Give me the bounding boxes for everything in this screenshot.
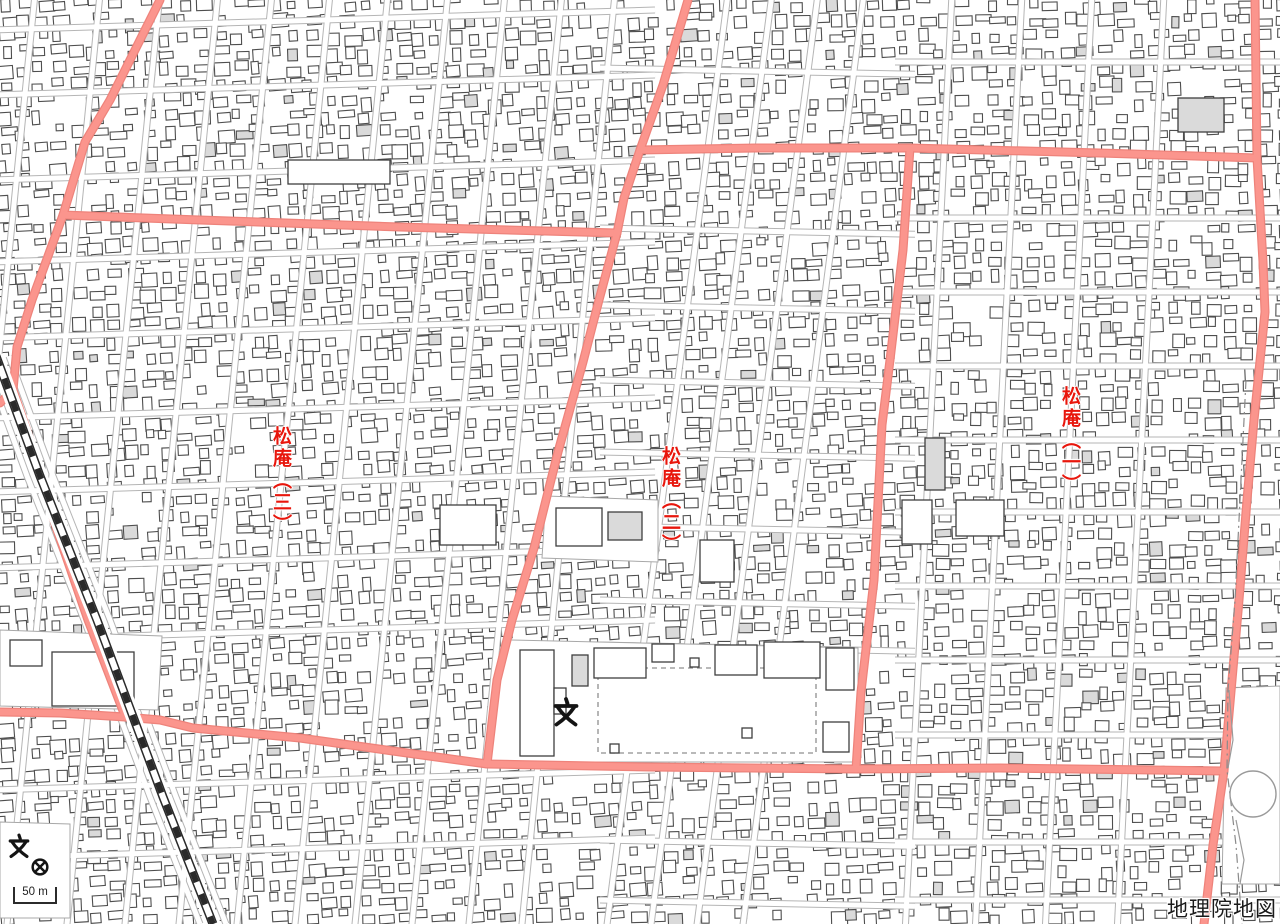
feature-building xyxy=(700,540,734,582)
map-attribution-link[interactable]: 地理院地図 xyxy=(1167,893,1277,923)
district-label-shoan-3: 松庵（三） xyxy=(271,426,290,536)
district-label-shoan-2: 松庵（二） xyxy=(660,446,679,556)
scale-bar-label: 50 m xyxy=(16,886,54,898)
district-label-shoan-1: 松庵（一） xyxy=(1060,386,1079,496)
map-svg xyxy=(0,0,1280,924)
feature-building xyxy=(288,160,390,184)
feature-building xyxy=(440,505,496,545)
feature-building xyxy=(956,500,1004,536)
feature-building xyxy=(1178,98,1224,132)
feature-building xyxy=(902,500,932,544)
map-canvas[interactable]: 松庵（三） 松庵（二） 松庵（一） 50 m 地理院地図 xyxy=(0,0,1280,924)
feature-building xyxy=(925,438,945,490)
